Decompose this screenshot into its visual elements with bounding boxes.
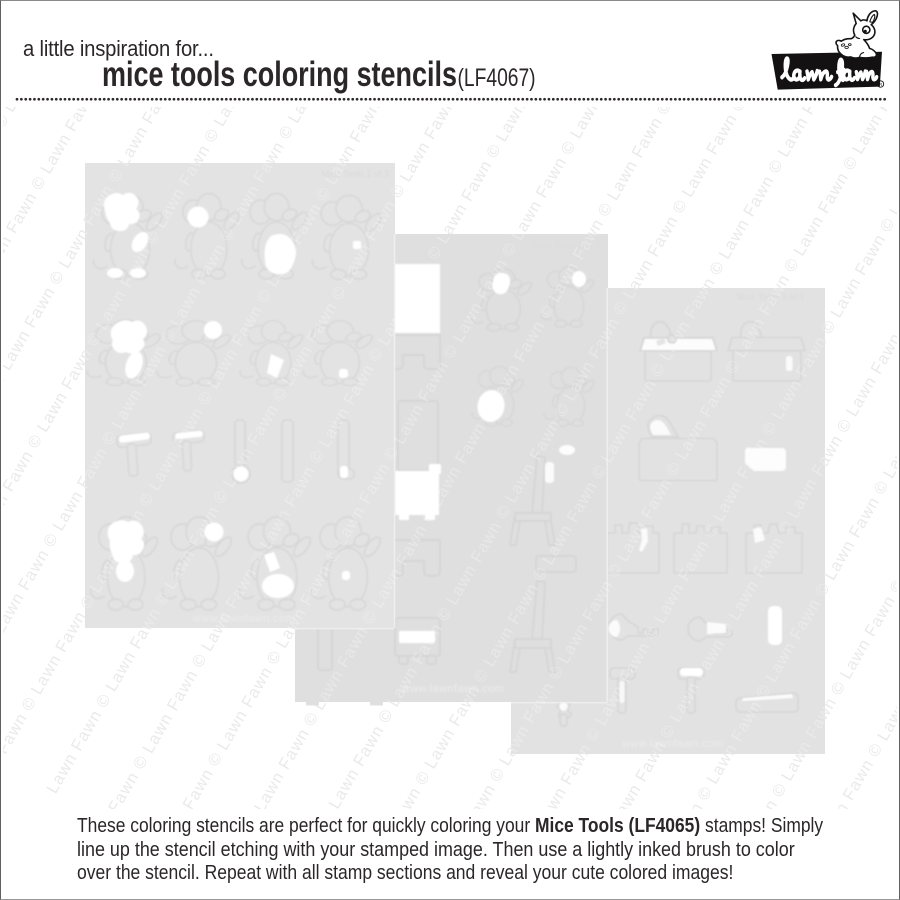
svg-text:www.lawnfawn.com: www.lawnfawn.com	[192, 613, 295, 625]
svg-text:www.lawnfawn.com: www.lawnfawn.com	[401, 683, 504, 695]
